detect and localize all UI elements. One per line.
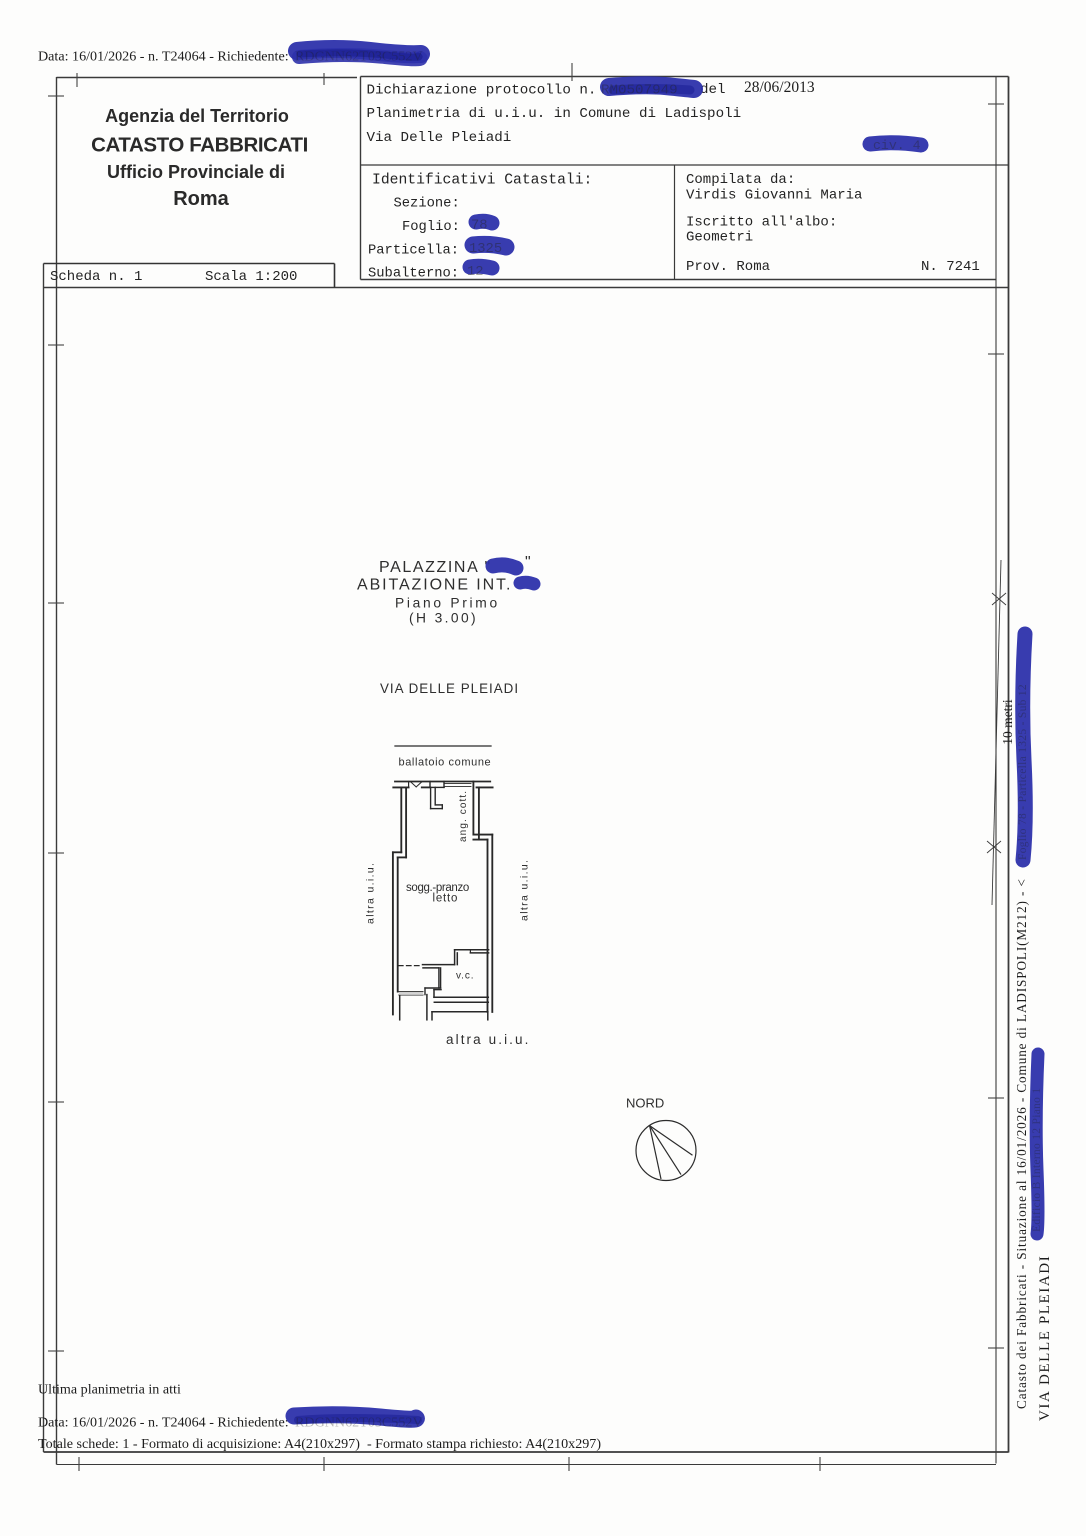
- svg-text:Particella:: Particella:: [368, 243, 459, 259]
- svg-text:ABITAZIONE INT.: ABITAZIONE INT.: [357, 577, 512, 594]
- svg-text:Iscritto all'albo:: Iscritto all'albo:: [686, 215, 837, 231]
- svg-text:VIA DELLE PLEIADI: VIA DELLE PLEIADI: [1037, 1255, 1053, 1421]
- svg-text:PALAZZINA ": PALAZZINA ": [379, 559, 492, 576]
- svg-text:": ": [525, 554, 531, 571]
- svg-text:Compilata da:: Compilata da:: [686, 172, 795, 188]
- svg-text:Ultima planimetria in atti: Ultima planimetria in atti: [38, 1382, 181, 1398]
- svg-text:(H 3.00): (H 3.00): [409, 611, 478, 626]
- svg-text:RDGNN62T03C552V: RDGNN62T03C552V: [295, 49, 423, 65]
- svg-text:Piano Primo: Piano Primo: [395, 596, 500, 611]
- svg-text:Agenzia del Territorio: Agenzia del Territorio: [105, 106, 289, 126]
- svg-text:Scala 1:200: Scala 1:200: [205, 269, 297, 285]
- svg-text:Sezione:: Sezione:: [394, 196, 460, 212]
- svg-text:Via Delle Pleiadi: Via Delle Pleiadi: [367, 130, 512, 146]
- svg-text:28/06/2013: 28/06/2013: [744, 79, 815, 96]
- svg-text:Data: 16/01/2026 - n. T24064 -: Data: 16/01/2026 - n. T24064 - Richieden…: [38, 1415, 289, 1431]
- svg-text:Roma: Roma: [173, 188, 229, 210]
- svg-text:RDGNN62T03C552V: RDGNN62T03C552V: [295, 1415, 423, 1431]
- svg-text:Geometri: Geometri: [686, 230, 753, 246]
- svg-text:v.c.: v.c.: [456, 971, 474, 982]
- svg-text:1325: 1325: [469, 242, 502, 257]
- svg-text:N. 7241: N. 7241: [921, 259, 980, 275]
- svg-text:Subalterno:: Subalterno:: [368, 266, 459, 282]
- svg-text:letto: letto: [433, 893, 459, 905]
- svg-text:NORD: NORD: [626, 1096, 664, 1111]
- svg-text:Ufficio Provinciale di: Ufficio Provinciale di: [107, 162, 285, 182]
- svg-text:Totale schede: 1 - Formato di: Totale schede: 1 - Formato di acquisizio…: [38, 1436, 601, 1452]
- svg-text:altra u.i.u.: altra u.i.u.: [446, 1032, 530, 1047]
- svg-text:Virdis Giovanni Maria: Virdis Giovanni Maria: [686, 188, 862, 204]
- svg-text:Prov. Roma: Prov. Roma: [686, 259, 770, 275]
- svg-text:78: 78: [471, 219, 488, 234]
- svg-text:RM0507949: RM0507949: [601, 83, 678, 99]
- svg-text:Dichiarazione protocollo n.: Dichiarazione protocollo n.: [367, 83, 597, 99]
- svg-text:altra u.i.u.: altra u.i.u.: [519, 859, 531, 921]
- svg-text:Scheda n. 1: Scheda n. 1: [50, 269, 142, 285]
- svg-text:CATASTO FABBRICATI: CATASTO FABBRICATI: [91, 134, 308, 157]
- svg-text:Planimetria di u.i.u. in Comun: Planimetria di u.i.u. in Comune di Ladis…: [367, 106, 742, 122]
- svg-text:Foglio:: Foglio:: [402, 219, 460, 235]
- svg-text:Foglio 78 - Particella 1325 -: Foglio 78 - Particella 1325 - Sub 12: [1017, 684, 1029, 860]
- svg-text:altra u.i.u.: altra u.i.u.: [365, 862, 377, 924]
- svg-text:10 metri: 10 metri: [1000, 699, 1015, 745]
- svg-text:Catasto dei Fabbricati - Situa: Catasto dei Fabbricati - Situazione al 1…: [1014, 878, 1029, 1409]
- svg-text:Edificio B Interno 12 Piano 1: Edificio B Interno 12 Piano 1: [1031, 1088, 1043, 1232]
- svg-text:ballatoio comune: ballatoio comune: [399, 757, 492, 769]
- svg-text:12: 12: [467, 265, 484, 280]
- svg-text:del: del: [700, 82, 726, 98]
- svg-text:Identificativi Catastali:: Identificativi Catastali:: [372, 173, 592, 189]
- svg-text:ang. cott.: ang. cott.: [458, 790, 469, 842]
- svg-text:Data: 16/01/2026 - n. T24064 -: Data: 16/01/2026 - n. T24064 - Richieden…: [38, 49, 289, 65]
- svg-text:civ. 4: civ. 4: [873, 138, 921, 153]
- svg-text:VIA DELLE PLEIADI: VIA DELLE PLEIADI: [380, 681, 519, 696]
